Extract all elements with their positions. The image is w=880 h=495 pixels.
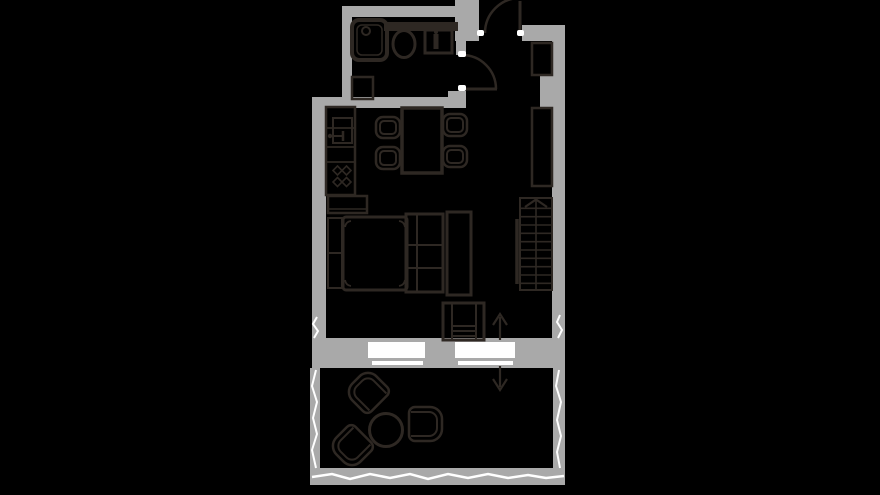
window-right-sill xyxy=(458,361,513,365)
bathroom-faucet xyxy=(434,34,439,49)
wall-entry-right xyxy=(522,25,565,41)
window-left xyxy=(368,342,425,358)
window-right xyxy=(455,342,515,358)
background xyxy=(0,0,880,495)
door-hinge xyxy=(458,51,466,57)
floor-plan-stage xyxy=(0,0,880,495)
door-hinge xyxy=(458,85,466,91)
floor-plan-svg xyxy=(0,0,880,495)
wall-entry-left-jamb xyxy=(455,0,479,41)
wall-room-bottom xyxy=(312,338,565,368)
bathroom-tap-dot xyxy=(434,30,438,34)
window-left-sill xyxy=(372,361,423,365)
wall-room-left xyxy=(312,97,326,368)
door-hinge xyxy=(477,30,484,36)
wall-closet-niche xyxy=(540,75,552,108)
door-hinge xyxy=(517,30,524,36)
wall-bathroom-left xyxy=(342,6,352,108)
kitchen-faucet-knob xyxy=(328,134,332,138)
